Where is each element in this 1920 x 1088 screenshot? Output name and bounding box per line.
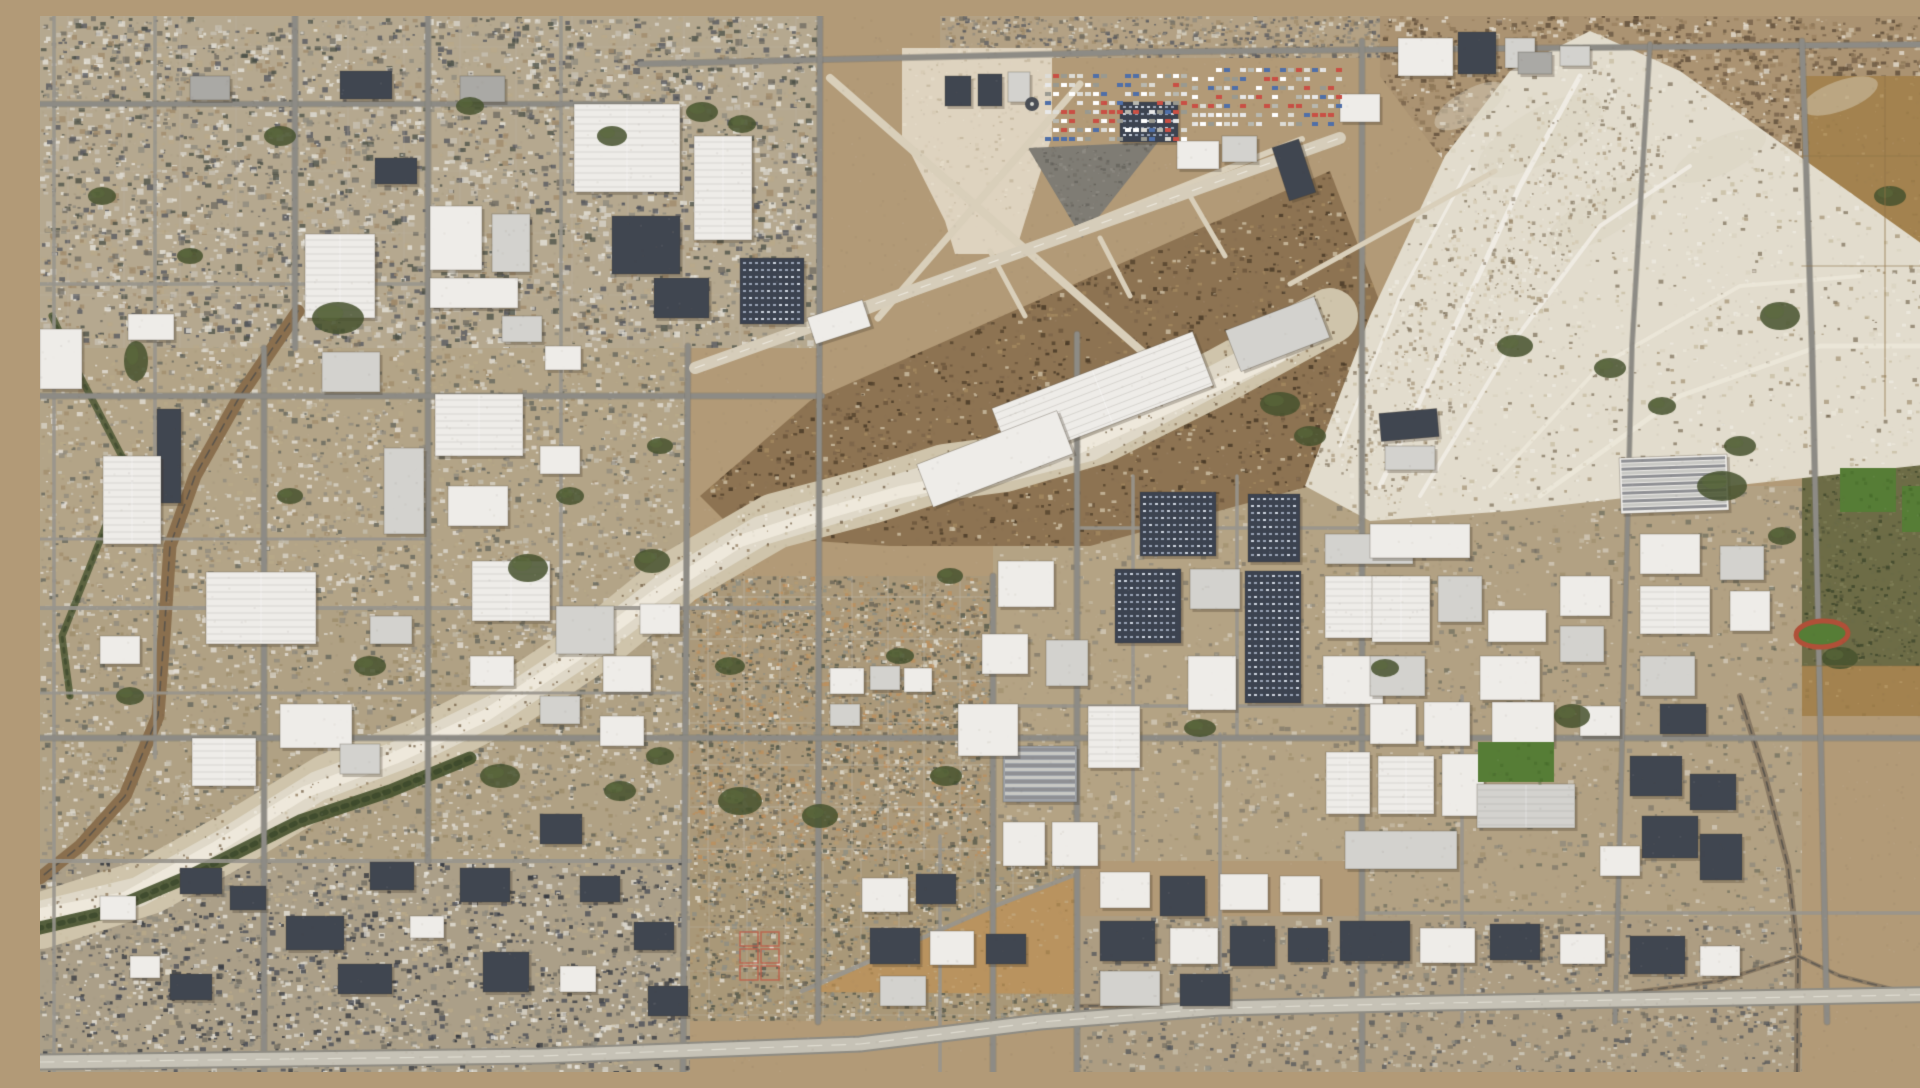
satellite-map (40, 16, 1920, 1072)
satellite-imagery-canvas (40, 16, 1920, 1072)
